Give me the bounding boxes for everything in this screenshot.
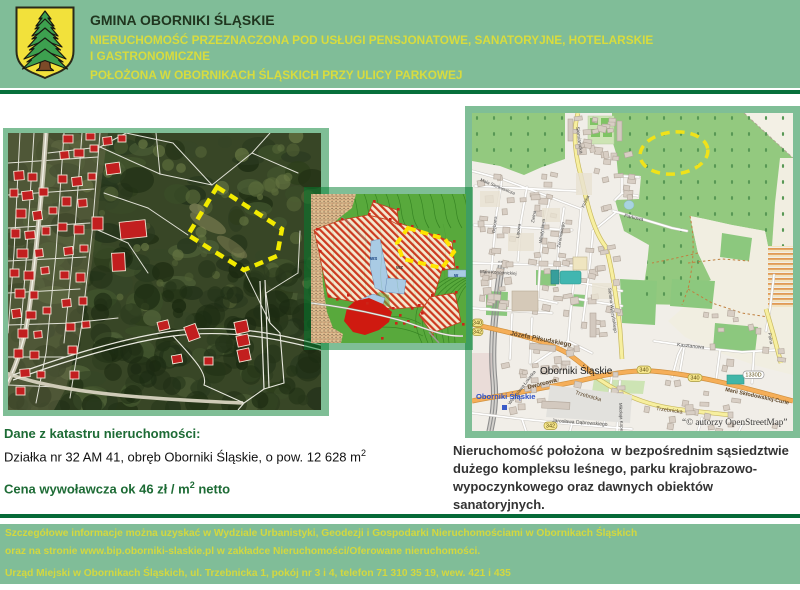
svg-text:1330D: 1330D [745, 373, 761, 379]
svg-text:Oborniki Śląskie: Oborniki Śląskie [476, 392, 536, 401]
svg-text:340: 340 [473, 321, 482, 327]
svg-text:340: 340 [639, 368, 648, 374]
svg-text:340: 340 [690, 376, 699, 382]
svg-text:WS: WS [370, 256, 377, 261]
svg-text:WZ: WZ [396, 265, 403, 270]
svg-text:“© autorzy OpenStreetMap”: “© autorzy OpenStreetMap” [682, 417, 787, 427]
svg-text:Oborniki Śląskie: Oborniki Śląskie [540, 364, 613, 377]
svg-text:342: 342 [546, 424, 555, 430]
svg-text:342: 342 [473, 330, 482, 336]
